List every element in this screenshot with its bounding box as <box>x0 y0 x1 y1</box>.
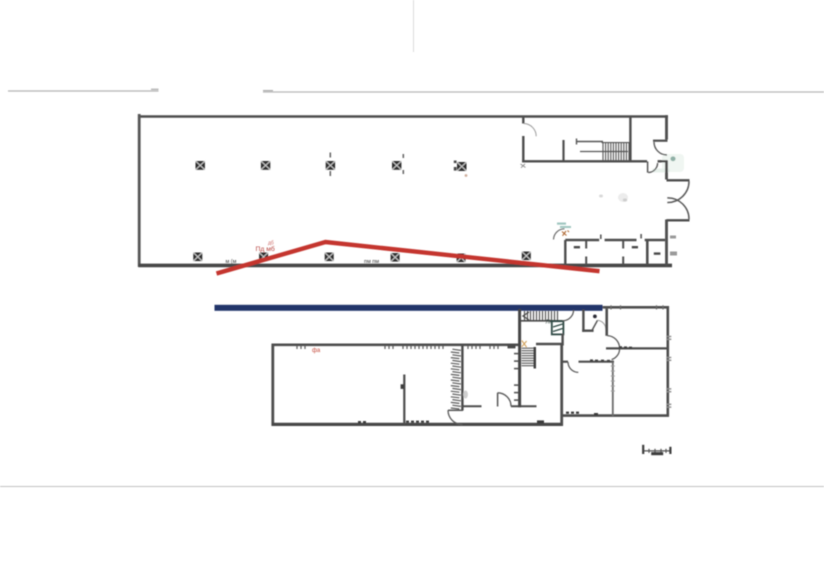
svg-text:м (м: м (м <box>226 259 237 265</box>
svg-text:пм пм: пм пм <box>364 259 379 265</box>
svg-text:фа: фа <box>312 348 321 354</box>
svg-text:дб: дб <box>268 241 274 247</box>
